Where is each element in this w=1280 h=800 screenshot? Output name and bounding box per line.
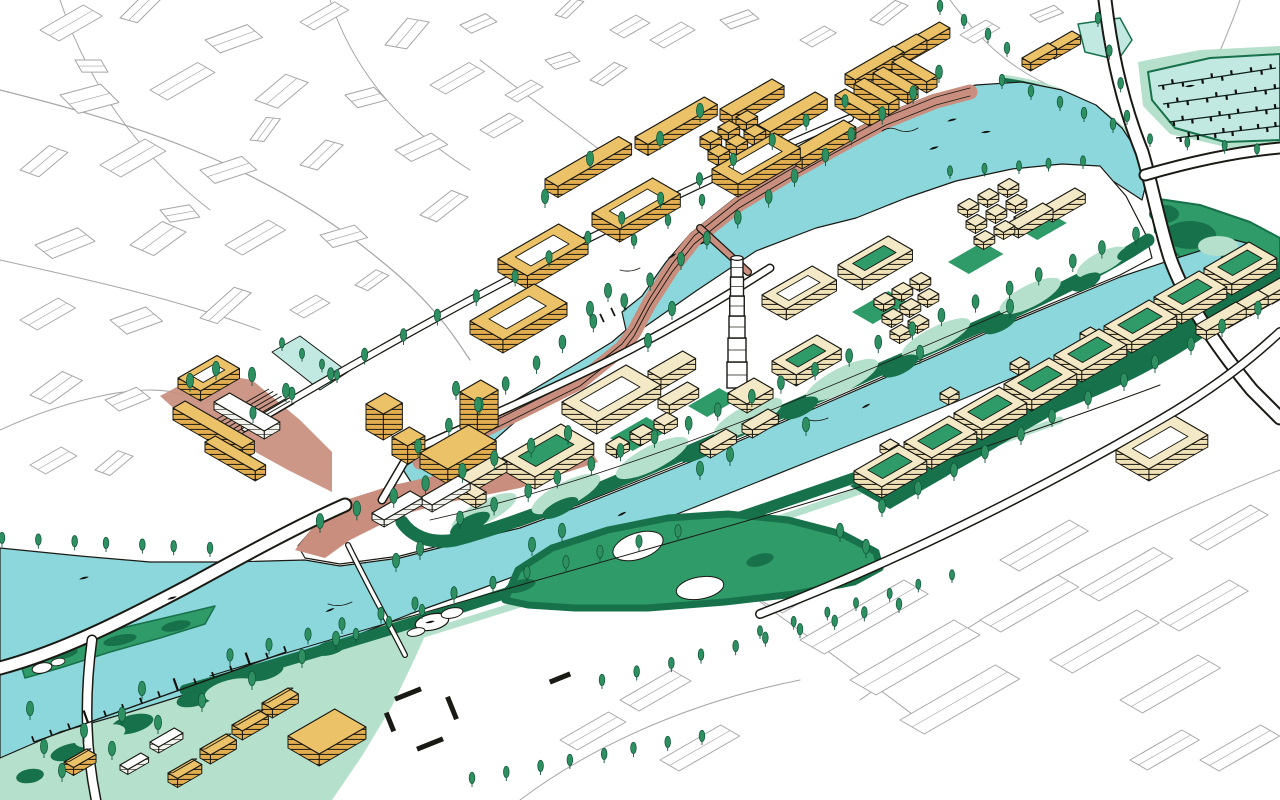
- tree-icon: [279, 338, 284, 348]
- tree-icon: [947, 166, 952, 176]
- tree-icon: [546, 251, 552, 264]
- marina-boat: [1211, 73, 1212, 77]
- tree-icon: [657, 192, 663, 205]
- tree-icon: [916, 345, 923, 359]
- tree-icon: [685, 416, 692, 430]
- city-block-outline: [120, 0, 164, 23]
- tree-icon: [879, 107, 886, 121]
- tree-icon: [400, 329, 406, 342]
- tree-icon: [334, 370, 339, 380]
- marina-boat: [1177, 98, 1178, 102]
- tree-icon: [733, 640, 739, 651]
- marina-boat: [1192, 119, 1193, 123]
- tree-icon: [1124, 110, 1130, 121]
- marina-boat: [1226, 95, 1227, 99]
- tree-icon: [558, 523, 565, 537]
- tree-icon: [103, 537, 109, 548]
- tree-icon: [846, 349, 853, 363]
- tree-icon: [353, 501, 361, 516]
- tree-icon: [875, 335, 882, 349]
- tree-icon: [1118, 78, 1124, 89]
- marina-boat: [1261, 70, 1262, 74]
- tree-icon: [1110, 118, 1116, 129]
- tree-icon: [108, 741, 115, 755]
- tree-icon: [0, 532, 5, 543]
- tree-icon: [696, 461, 703, 475]
- boat-wake: [620, 268, 640, 271]
- tree-icon: [559, 335, 566, 349]
- tree-icon: [597, 545, 603, 558]
- tree-icon: [524, 566, 530, 579]
- tree-icon: [72, 536, 78, 547]
- tree-icon: [916, 579, 921, 589]
- tree-icon: [601, 748, 607, 759]
- tree-icon: [528, 537, 535, 551]
- marina-boat: [1198, 136, 1199, 140]
- tree-icon: [305, 628, 311, 641]
- tree-icon: [328, 368, 334, 381]
- tree-icon: [985, 28, 991, 39]
- tree-icon: [1028, 85, 1034, 96]
- tree-icon: [1133, 227, 1140, 241]
- tree-icon: [699, 730, 705, 741]
- tree-icon: [538, 760, 544, 771]
- city-block-ridge: [1090, 553, 1164, 596]
- tree-icon: [378, 607, 384, 620]
- tree-icon: [887, 588, 892, 598]
- tree-icon: [999, 74, 1005, 85]
- tree-icon: [207, 542, 213, 553]
- tree-icon: [1188, 337, 1195, 351]
- tree-icon: [647, 273, 654, 287]
- tree-icon: [248, 367, 255, 381]
- tree-icon: [621, 294, 628, 308]
- building-yellow: [545, 137, 632, 198]
- tree-icon: [1006, 299, 1013, 313]
- tree-icon: [1081, 107, 1087, 118]
- tree-icon: [564, 426, 572, 441]
- tree-icon: [1098, 241, 1105, 255]
- marina-boat: [1232, 132, 1233, 136]
- tree-icon: [762, 632, 768, 643]
- marina-boat: [1211, 117, 1212, 121]
- marina-boat: [1231, 70, 1232, 74]
- marina-boat: [1223, 128, 1224, 132]
- tree-icon: [386, 616, 392, 627]
- city-block-ridge: [912, 672, 1007, 727]
- tree-icon: [879, 499, 886, 513]
- tree-icon: [675, 525, 681, 538]
- tree-icon: [696, 173, 702, 186]
- tree-icon: [769, 134, 775, 147]
- tree-icon: [138, 681, 145, 695]
- tree-icon: [862, 539, 869, 553]
- marina-boat: [1182, 116, 1183, 120]
- road-marking: [386, 713, 393, 732]
- tree-icon: [668, 657, 674, 668]
- road-gray: [0, 390, 185, 430]
- tree-icon: [563, 556, 569, 569]
- tree-icon: [415, 439, 422, 453]
- marina-boat: [1236, 90, 1237, 94]
- tree-icon: [248, 671, 255, 685]
- marina-boat: [1275, 84, 1276, 88]
- tree-icon: [512, 270, 518, 283]
- tree-icon: [282, 383, 289, 397]
- masterplan-svg: [0, 0, 1280, 800]
- building-yellow: [498, 224, 588, 289]
- tree-icon: [353, 628, 359, 639]
- tree-icon: [1018, 427, 1025, 441]
- chimney-cap: [731, 256, 743, 261]
- tree-icon: [634, 666, 640, 677]
- city-block-ridge: [863, 628, 967, 688]
- tree-icon: [656, 131, 663, 145]
- road-marking: [448, 697, 457, 719]
- tree-icon: [631, 742, 637, 753]
- tree-icon: [419, 604, 425, 615]
- tree-icon: [457, 511, 464, 525]
- tree-icon: [617, 443, 624, 457]
- marina-boat: [1207, 98, 1208, 102]
- masterplan-illustration: [0, 0, 1280, 800]
- road-gray: [480, 60, 600, 150]
- tree-icon: [842, 95, 848, 108]
- tree-icon: [604, 283, 611, 297]
- tree-icon: [1152, 355, 1159, 369]
- tree-icon: [186, 373, 193, 387]
- tree-icon: [982, 163, 987, 173]
- tree-icon: [422, 476, 430, 491]
- tree-icon: [1254, 144, 1259, 154]
- tree-icon: [503, 766, 509, 777]
- tree-icon: [972, 295, 979, 309]
- tree-icon: [198, 693, 205, 707]
- tree-icon: [445, 418, 452, 432]
- road-marking: [611, 308, 615, 316]
- marina-boat: [1267, 128, 1268, 132]
- marina-boat: [1255, 87, 1256, 91]
- tree-icon: [937, 0, 943, 11]
- tree-icon: [390, 488, 398, 503]
- tree-icon: [502, 377, 509, 391]
- tree-icon: [473, 290, 479, 303]
- tree-icon: [586, 301, 593, 315]
- marina-boat: [1172, 79, 1173, 83]
- building-cream: [1116, 416, 1208, 481]
- tree-icon: [250, 407, 256, 420]
- tree-icon: [541, 189, 548, 203]
- tree-icon: [339, 618, 345, 631]
- tree-icon: [703, 231, 710, 245]
- road-gray: [0, 90, 470, 360]
- marina-boat: [1229, 114, 1230, 118]
- tree-icon: [644, 333, 651, 347]
- tree-icon: [525, 484, 532, 498]
- tree-icon: [651, 430, 658, 444]
- tree-icon: [848, 127, 855, 141]
- marina-boat: [1180, 138, 1181, 142]
- tree-icon: [316, 514, 324, 529]
- tree-icon: [586, 151, 593, 165]
- tree-icon: [474, 397, 481, 411]
- city-block-ridge: [990, 581, 1068, 626]
- tree-icon: [1069, 254, 1076, 268]
- marina-boat: [1240, 126, 1241, 130]
- city-block-ridge: [1210, 731, 1271, 766]
- tree-icon: [765, 190, 772, 204]
- tree-icon: [154, 715, 161, 729]
- tree-icon: [1255, 301, 1262, 315]
- tree-icon: [982, 445, 989, 459]
- marina-boat: [1266, 110, 1267, 114]
- tree-icon: [1035, 268, 1042, 282]
- tree-icon: [533, 356, 540, 370]
- marina-boat: [1187, 101, 1188, 105]
- city-block-ridge: [1199, 510, 1260, 545]
- marina-boat: [1202, 79, 1203, 83]
- tree-icon: [861, 607, 867, 618]
- tree-icon: [803, 114, 809, 127]
- tree-icon: [332, 631, 339, 645]
- tree-icon: [1016, 161, 1021, 171]
- tree-icon: [678, 252, 685, 266]
- marina-boat: [1174, 121, 1175, 125]
- tree-icon: [748, 389, 755, 403]
- city-block-ridge: [1061, 617, 1148, 667]
- tree-icon: [896, 598, 902, 609]
- tree-icon: [80, 723, 87, 737]
- road-marking: [550, 674, 570, 682]
- tree-icon: [459, 463, 467, 478]
- tree-icon: [1121, 373, 1128, 387]
- tree-icon: [1185, 137, 1190, 147]
- marina-boat: [1265, 90, 1266, 94]
- tree-icon: [1080, 156, 1085, 166]
- tree-icon: [797, 624, 803, 635]
- tree-icon: [961, 14, 967, 25]
- marina-boat: [1216, 92, 1217, 96]
- building-yellow: [1022, 43, 1057, 71]
- tree-icon: [1057, 96, 1063, 107]
- tree-icon: [949, 570, 954, 580]
- tree-icon: [778, 376, 785, 390]
- tree-icon: [319, 359, 324, 369]
- marina-boat: [1275, 104, 1276, 108]
- tree-icon: [915, 481, 922, 495]
- tree-icon: [392, 553, 399, 567]
- tree-icon: [812, 362, 819, 376]
- tree-icon: [298, 649, 305, 663]
- tree-icon: [118, 707, 125, 721]
- tree-icon: [491, 451, 499, 466]
- city-block-outline: [555, 0, 584, 18]
- marina-boat: [1270, 64, 1271, 68]
- tree-icon: [567, 754, 573, 765]
- road-marking: [417, 739, 443, 749]
- tree-icon: [227, 649, 233, 662]
- tree-icon: [665, 214, 671, 225]
- tree-icon: [836, 523, 843, 537]
- marina-boat: [1215, 134, 1216, 138]
- tree-icon: [791, 169, 798, 183]
- tree-icon: [665, 736, 671, 747]
- marina-boat: [1219, 111, 1220, 115]
- tree-icon: [599, 674, 605, 685]
- tree-icon: [412, 597, 418, 610]
- tree-icon: [1147, 134, 1152, 144]
- tree-icon: [1219, 319, 1226, 333]
- tree-icon: [757, 626, 762, 636]
- city-block-ridge: [1010, 526, 1079, 566]
- tree-icon: [554, 470, 561, 484]
- city-block-ridge: [1170, 586, 1239, 626]
- tree-icon: [698, 649, 704, 660]
- tree-icon: [726, 447, 733, 461]
- tree-icon: [26, 701, 33, 715]
- tree-icon: [491, 498, 498, 512]
- tree-icon: [35, 534, 41, 545]
- tree-icon: [40, 739, 47, 753]
- marina-boat: [1258, 124, 1259, 128]
- tree-icon: [631, 234, 637, 245]
- marina-boat: [1168, 103, 1169, 107]
- marina-boat: [1222, 76, 1223, 80]
- tree-icon: [822, 148, 829, 162]
- road-marking: [600, 314, 604, 322]
- tree-icon: [696, 103, 703, 117]
- tree-icon: [1049, 409, 1056, 423]
- tree-icon: [1085, 391, 1092, 405]
- tree-icon: [938, 308, 945, 322]
- tree-icon: [361, 348, 367, 361]
- tree-icon: [527, 438, 535, 453]
- tree-icon: [909, 322, 916, 336]
- tree-icon: [266, 638, 272, 651]
- tree-icon: [1106, 45, 1112, 56]
- city-block-ridge: [1131, 662, 1209, 707]
- marina-boat: [1238, 109, 1239, 113]
- tree-icon: [1095, 12, 1101, 23]
- tree-icon: [730, 153, 736, 166]
- building-yellow: [366, 393, 402, 440]
- tree-icon: [469, 772, 475, 783]
- tree-icon: [714, 403, 721, 417]
- tree-icon: [825, 607, 830, 617]
- tree-icon: [299, 348, 304, 358]
- tree-icon: [1006, 281, 1013, 295]
- tree-icon: [936, 65, 943, 79]
- tree-icon: [802, 417, 809, 431]
- marina-boat: [1251, 67, 1252, 71]
- tree-icon: [451, 587, 457, 600]
- marina-boat: [1256, 106, 1257, 110]
- tree-icon: [452, 381, 459, 395]
- tree-icon: [416, 541, 423, 555]
- tree-icon: [588, 457, 595, 471]
- tree-icon: [58, 763, 65, 777]
- tree-icon: [139, 539, 145, 550]
- tree-icon: [636, 535, 642, 548]
- tree-icon: [1222, 140, 1227, 150]
- marina-boat: [1163, 85, 1164, 89]
- tree-icon: [212, 361, 219, 375]
- tree-icon: [434, 309, 440, 322]
- tree-icon: [699, 194, 705, 205]
- tree-icon: [171, 541, 177, 552]
- tree-icon: [585, 231, 591, 244]
- marina-boat: [1188, 132, 1189, 136]
- tree-icon: [490, 576, 496, 589]
- marina-boat: [1183, 82, 1184, 86]
- tree-icon: [832, 615, 838, 626]
- tree-icon: [910, 86, 917, 100]
- tree-icon: [619, 212, 625, 225]
- tree-icon: [590, 314, 597, 328]
- building-yellow: [592, 178, 680, 242]
- tree-icon: [951, 463, 958, 477]
- tree-icon: [668, 301, 675, 315]
- marina-boat: [1275, 122, 1276, 126]
- tree-icon: [1004, 42, 1010, 53]
- tree-icon: [791, 616, 796, 626]
- tree-icon: [1046, 158, 1051, 168]
- tree-icon: [853, 598, 858, 608]
- tree-icon: [734, 211, 741, 225]
